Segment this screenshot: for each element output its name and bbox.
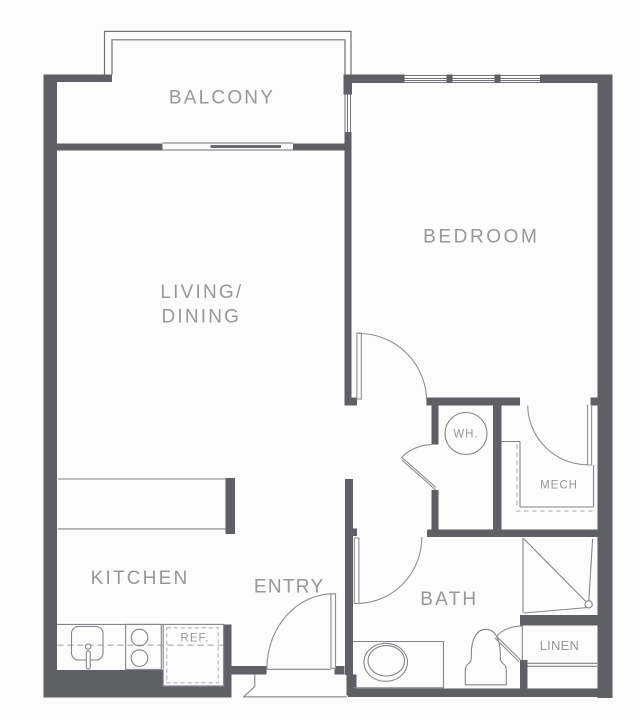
svg-text:BALCONY: BALCONY — [169, 87, 275, 108]
svg-text:DINING: DINING — [161, 307, 241, 328]
svg-text:LIVING/: LIVING/ — [160, 282, 243, 303]
svg-text:WH.: WH. — [453, 428, 478, 440]
svg-text:KITCHEN: KITCHEN — [91, 568, 190, 589]
svg-text:ENTRY: ENTRY — [254, 577, 325, 598]
svg-text:BEDROOM: BEDROOM — [423, 226, 539, 247]
svg-text:BATH: BATH — [420, 589, 478, 610]
svg-text:MECH: MECH — [540, 479, 578, 491]
svg-text:LINEN: LINEN — [540, 638, 579, 653]
svg-text:REF.: REF. — [181, 633, 210, 645]
